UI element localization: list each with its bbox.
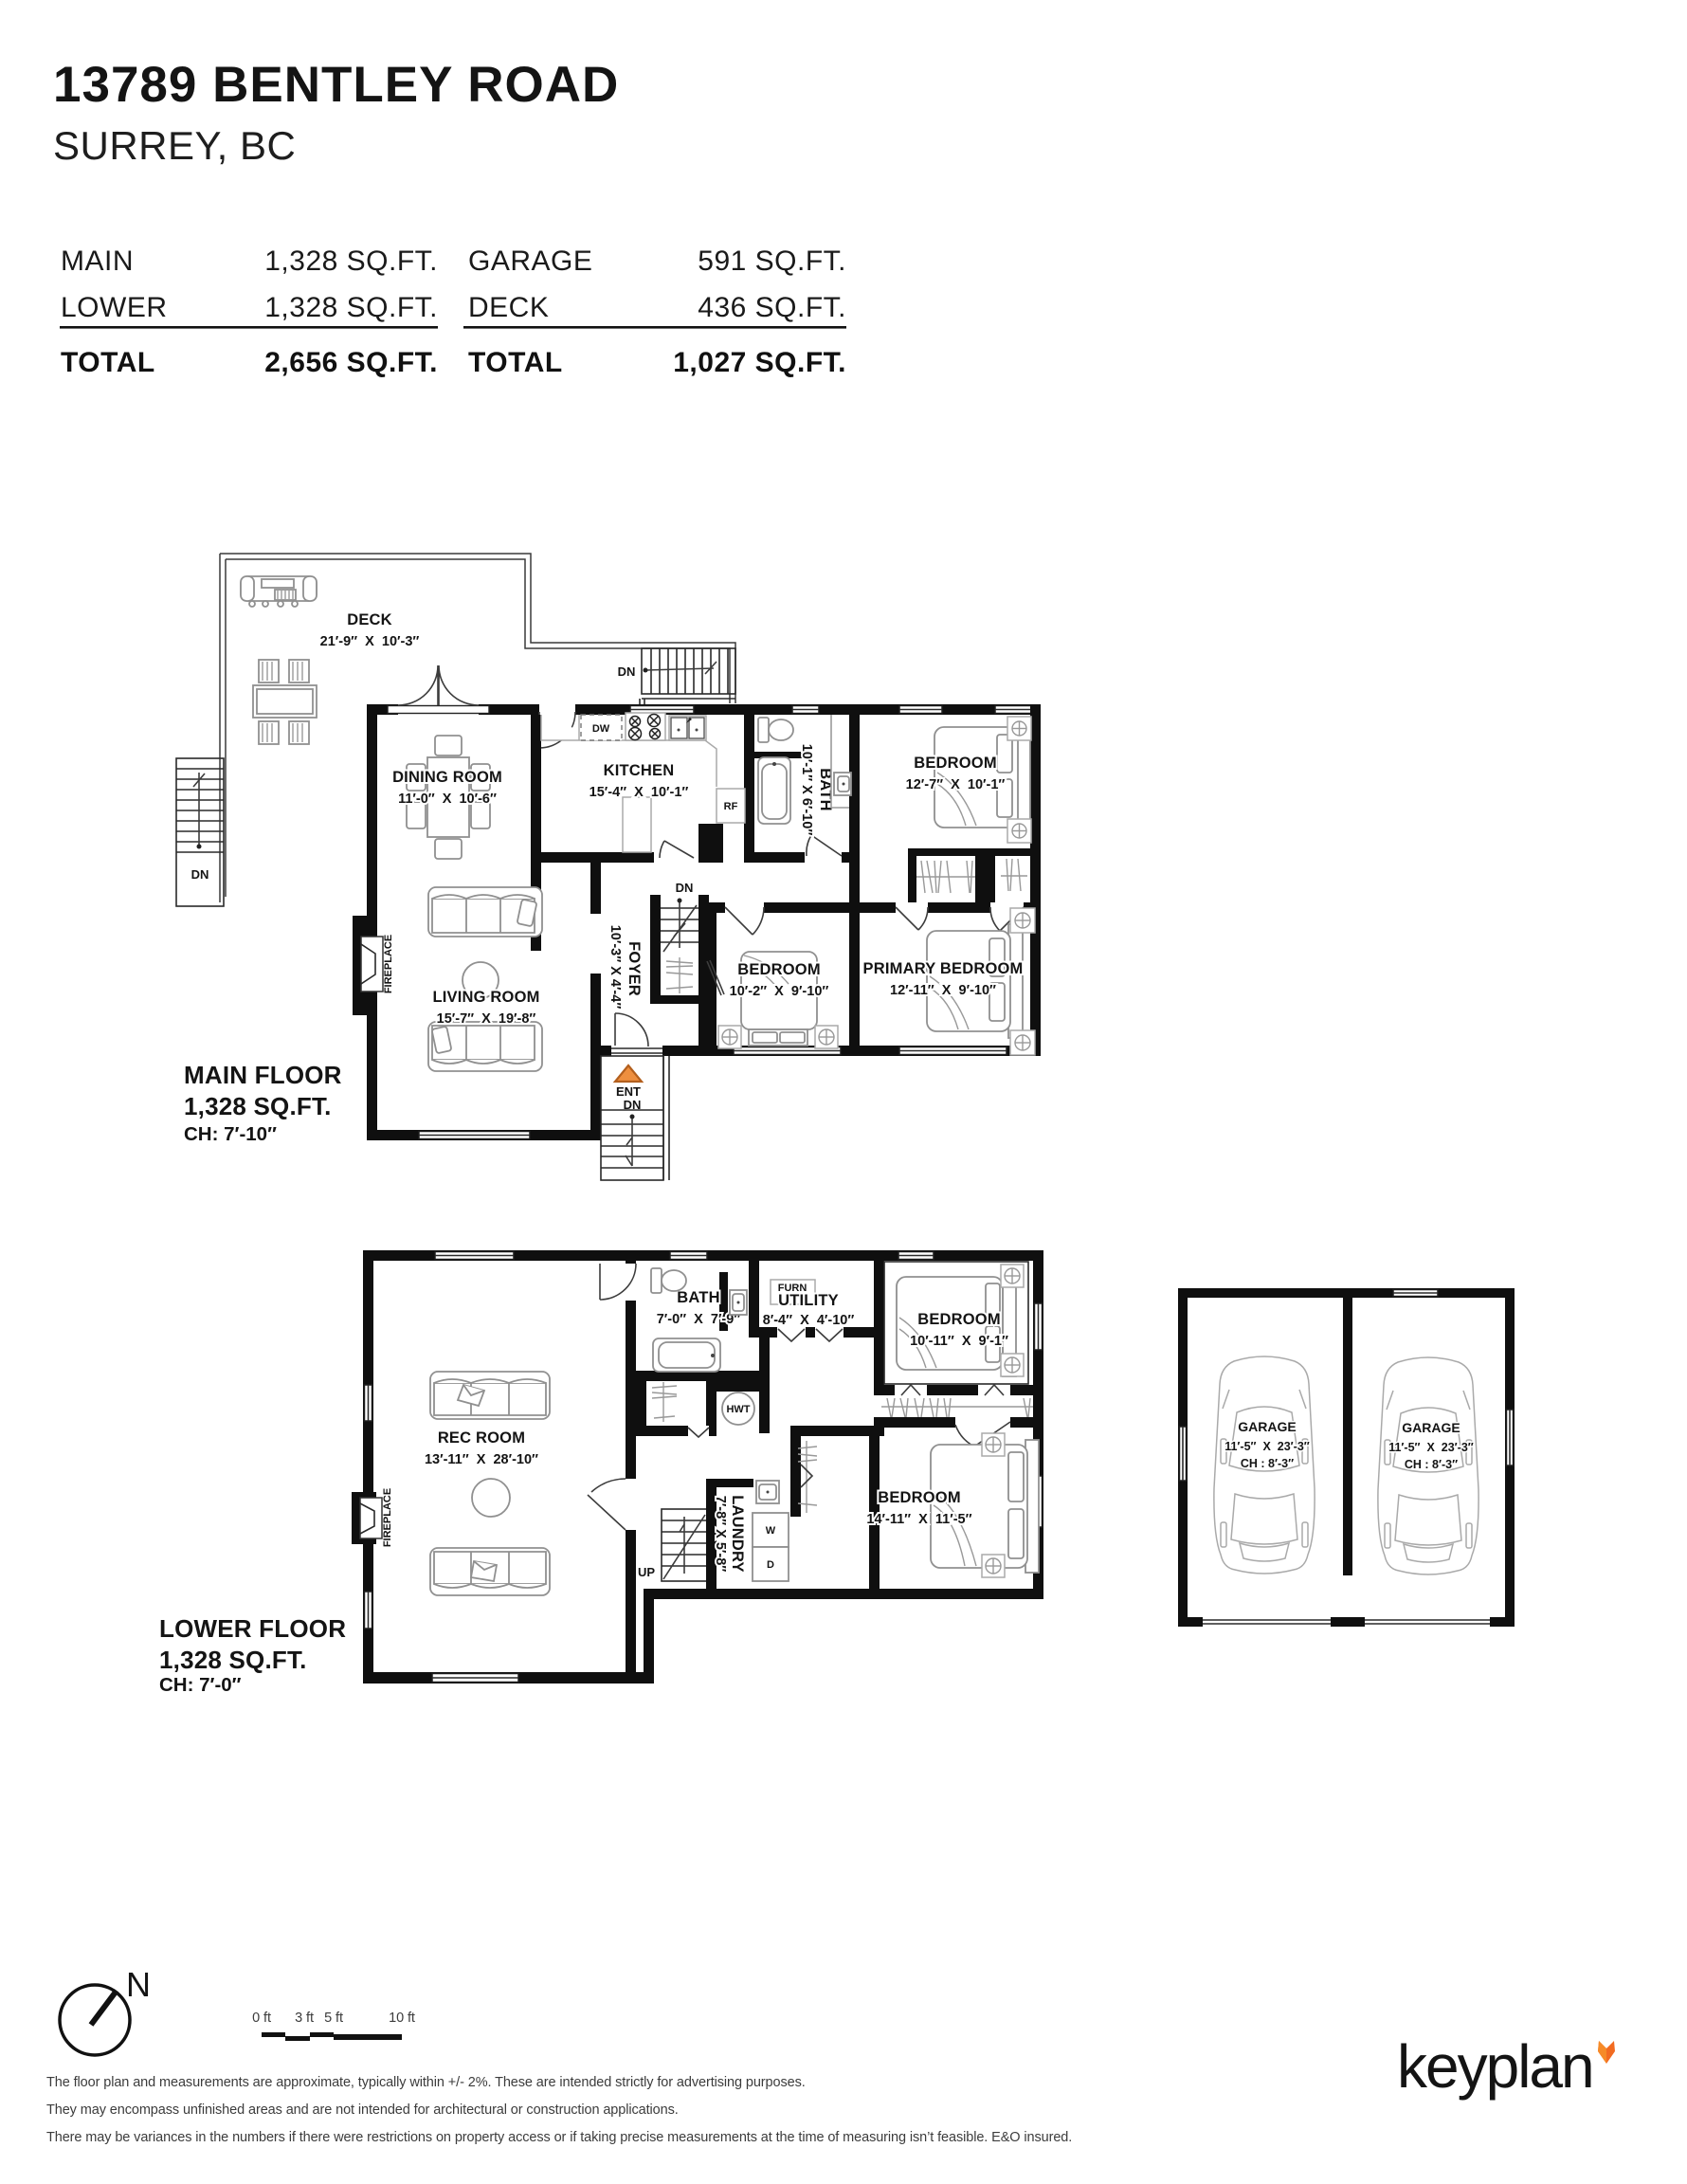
- svg-text:10′-11″ X 9′-1″: 10′-11″ X 9′-1″: [910, 1334, 1008, 1349]
- svg-text:BEDROOM: BEDROOM: [914, 755, 997, 772]
- svg-text:CH : 8′-3″: CH : 8′-3″: [1405, 1458, 1458, 1471]
- svg-text:UTILITY: UTILITY: [778, 1292, 839, 1309]
- svg-text:BEDROOM: BEDROOM: [878, 1489, 961, 1506]
- svg-text:12′-11″ X 9′-10″: 12′-11″ X 9′-10″: [890, 983, 996, 998]
- svg-text:PRIMARY BEDROOM: PRIMARY BEDROOM: [863, 960, 1024, 977]
- svg-text:2,656 SQ.FT.: 2,656 SQ.FT.: [264, 347, 438, 378]
- svg-text:TOTAL: TOTAL: [61, 347, 155, 378]
- svg-text:14′-11″ X 11′-5″: 14′-11″ X 11′-5″: [866, 1512, 971, 1527]
- svg-text:The floor plan and measurement: The floor plan and measurements are appr…: [46, 2075, 806, 2090]
- svg-text:10′-3″ X 4′-4″: 10′-3″ X 4′-4″: [608, 925, 623, 1010]
- svg-text:DN: DN: [618, 664, 636, 679]
- svg-text:7′-0″ X 7′-9″: 7′-0″ X 7′-9″: [657, 1312, 741, 1327]
- svg-text:keyplan: keyplan: [1397, 2032, 1593, 2101]
- svg-text:DN: DN: [191, 867, 209, 882]
- svg-text:1,328 SQ.FT.: 1,328 SQ.FT.: [264, 292, 438, 323]
- svg-text:10 ft: 10 ft: [389, 2011, 415, 2026]
- svg-text:591 SQ.FT.: 591 SQ.FT.: [698, 246, 846, 277]
- svg-text:11′-0″ X 10′-6″: 11′-0″ X 10′-6″: [398, 792, 497, 807]
- svg-text:DN: DN: [676, 881, 694, 895]
- svg-text:8′-4″ X 4′-10″: 8′-4″ X 4′-10″: [763, 1313, 855, 1328]
- svg-text:1,328 SQ.FT.: 1,328 SQ.FT.: [159, 1646, 307, 1674]
- svg-text:LOWER FLOOR: LOWER FLOOR: [159, 1614, 346, 1643]
- svg-text:MAIN FLOOR: MAIN FLOOR: [184, 1061, 342, 1089]
- svg-text:1,328 SQ.FT.: 1,328 SQ.FT.: [264, 246, 438, 277]
- svg-text:TOTAL: TOTAL: [468, 347, 563, 378]
- svg-text:GARAGE: GARAGE: [1402, 1420, 1460, 1435]
- svg-text:15′-4″ X 10′-1″: 15′-4″ X 10′-1″: [590, 785, 689, 800]
- svg-text:CH: 7′-0″: CH: 7′-0″: [159, 1674, 242, 1696]
- svg-text:13′-11″ X 28′-10″: 13′-11″ X 28′-10″: [425, 1452, 538, 1467]
- svg-text:LOWER: LOWER: [61, 292, 168, 323]
- svg-text:15′-7″ X 19′-8″: 15′-7″ X 19′-8″: [437, 1011, 536, 1027]
- svg-text:BEDROOM: BEDROOM: [917, 1311, 1001, 1328]
- svg-text:12′-7″ X 10′-1″: 12′-7″ X 10′-1″: [906, 777, 1006, 792]
- svg-text:CH: 7′-10″: CH: 7′-10″: [184, 1123, 277, 1145]
- svg-text:FIREPLACE: FIREPLACE: [382, 1488, 393, 1547]
- svg-text:10′-1″ X 6′-10″: 10′-1″ X 6′-10″: [799, 744, 814, 836]
- svg-text:13789 BENTLEY ROAD: 13789 BENTLEY ROAD: [53, 57, 619, 113]
- svg-text:RF: RF: [724, 801, 738, 812]
- svg-text:HWT: HWT: [726, 1404, 750, 1415]
- svg-text:DW: DW: [592, 723, 610, 735]
- svg-text:There may be variances in the: There may be variances in the numbers if…: [46, 2130, 1072, 2145]
- svg-text:7′-8″ X 5′-8″: 7′-8″ X 5′-8″: [713, 1496, 728, 1573]
- svg-text:436 SQ.FT.: 436 SQ.FT.: [698, 292, 846, 323]
- svg-text:GARAGE: GARAGE: [468, 246, 592, 277]
- svg-text:10′-2″ X 9′-10″: 10′-2″ X 9′-10″: [730, 984, 829, 999]
- svg-text:ENT: ENT: [616, 1084, 641, 1099]
- svg-text:GARAGE: GARAGE: [1238, 1419, 1296, 1434]
- svg-text:11′-5″ X 23′-3″: 11′-5″ X 23′-3″: [1224, 1440, 1310, 1453]
- svg-text:DINING ROOM: DINING ROOM: [392, 769, 502, 786]
- svg-text:0 ft: 0 ft: [252, 2011, 271, 2026]
- svg-text:KITCHEN: KITCHEN: [604, 762, 675, 779]
- svg-text:D: D: [767, 1559, 774, 1571]
- svg-text:N: N: [126, 1965, 151, 2004]
- svg-text:MAIN: MAIN: [61, 246, 134, 277]
- svg-text:SURREY, BC: SURREY, BC: [53, 123, 296, 168]
- svg-text:They may encompass unfinished: They may encompass unfinished areas and …: [46, 2102, 679, 2118]
- svg-text:UP: UP: [638, 1565, 655, 1579]
- svg-text:CH : 8′-3″: CH : 8′-3″: [1241, 1457, 1294, 1470]
- svg-text:5 ft: 5 ft: [324, 2011, 343, 2026]
- svg-text:REC ROOM: REC ROOM: [438, 1429, 525, 1447]
- svg-text:1,328 SQ.FT.: 1,328 SQ.FT.: [184, 1092, 332, 1120]
- svg-text:1,027 SQ.FT.: 1,027 SQ.FT.: [673, 347, 846, 378]
- svg-text:LAUNDRY: LAUNDRY: [729, 1495, 746, 1572]
- svg-text:FOYER: FOYER: [626, 941, 643, 996]
- svg-text:3 ft: 3 ft: [295, 2011, 314, 2026]
- svg-text:DECK: DECK: [347, 611, 392, 628]
- svg-text:BEDROOM: BEDROOM: [737, 961, 821, 978]
- svg-text:LIVING ROOM: LIVING ROOM: [432, 989, 539, 1006]
- svg-text:11′-5″ X 23′-3″: 11′-5″ X 23′-3″: [1388, 1441, 1474, 1454]
- svg-text:DECK: DECK: [468, 292, 549, 323]
- svg-text:FIREPLACE: FIREPLACE: [383, 935, 394, 993]
- svg-text:21′-9″ X 10′-3″: 21′-9″ X 10′-3″: [320, 634, 420, 649]
- svg-text:W: W: [766, 1525, 776, 1537]
- svg-text:BATH: BATH: [677, 1289, 719, 1306]
